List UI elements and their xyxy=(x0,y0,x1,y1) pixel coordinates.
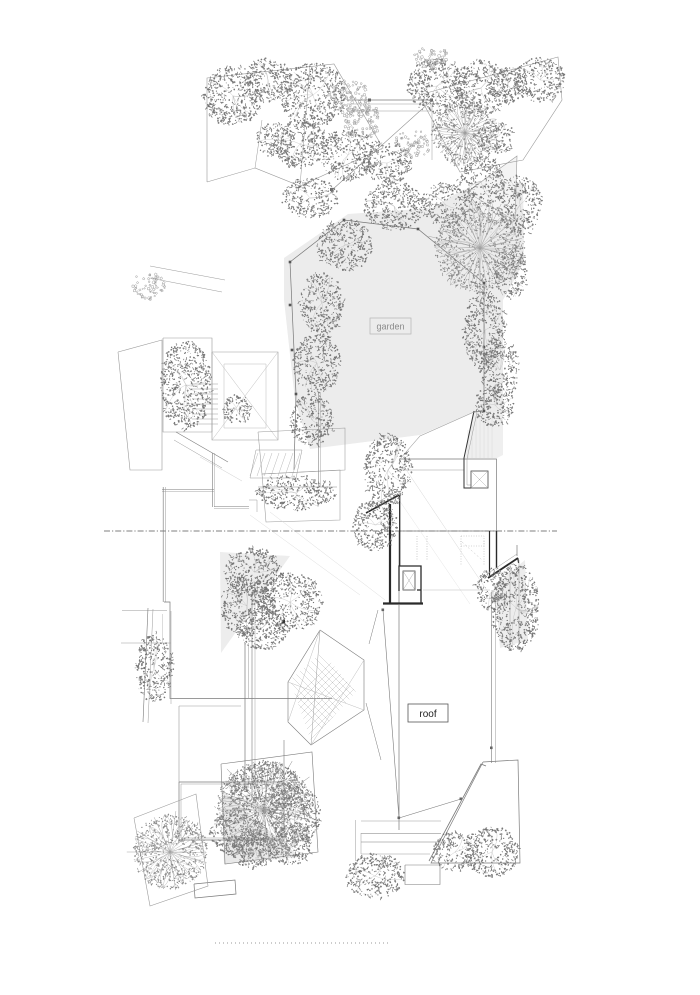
svg-text:garden: garden xyxy=(376,322,404,332)
svg-text:roof: roof xyxy=(419,709,436,720)
